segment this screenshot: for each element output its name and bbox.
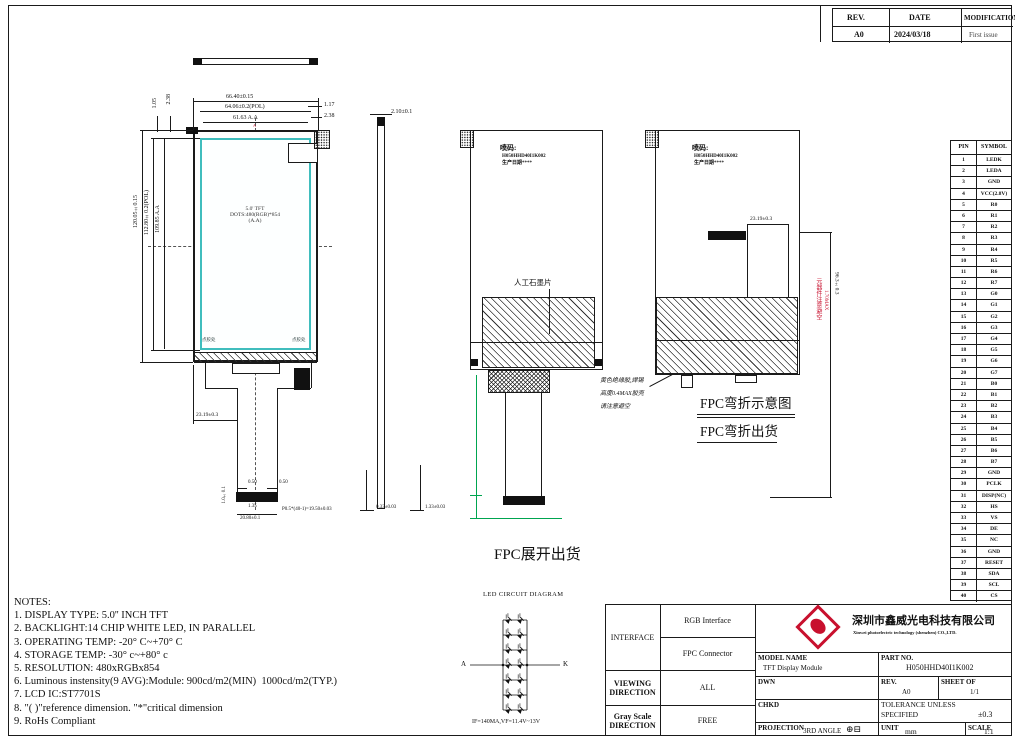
note-line: 4. STORAGE TEMP: -30° c~+80° c: [14, 649, 337, 662]
pin-row: 11R6: [951, 266, 1011, 277]
interface-label: INTERFACE: [611, 633, 654, 642]
dim-conn-3: 1.35: [248, 504, 257, 510]
dim-leader: [410, 510, 424, 511]
pin-cell: 21: [951, 379, 977, 389]
pin-cell: NC: [977, 535, 1011, 545]
viewing-value: ALL: [700, 683, 716, 692]
pin-cell: B0: [977, 379, 1011, 389]
company-name-en: Xinwei photoelectric technology (shenzhe…: [853, 630, 956, 635]
rev-label: REV.: [881, 678, 897, 686]
dim-ext: [770, 497, 832, 498]
symbol-col-header: SYMBOL: [977, 141, 1011, 154]
dim-left-small-1: 1.05: [152, 98, 159, 109]
dim-ext: [193, 365, 194, 424]
pin-cell: R0: [977, 200, 1011, 210]
pin-row: 9R4: [951, 244, 1011, 255]
title-underline: [697, 442, 777, 443]
pin-cell: VCC(2.8V): [977, 189, 1011, 199]
company-name-cn: 深圳市鑫威光电科技有限公司: [852, 615, 995, 628]
viewing-label-2: DIRECTION: [609, 688, 655, 697]
date-header: DATE: [909, 13, 931, 22]
dim-line: [200, 111, 311, 112]
tail-stiffener: [232, 363, 280, 374]
fpc-connector: [236, 492, 278, 502]
rev-value: A0: [902, 688, 911, 696]
pin-row: 21B0: [951, 378, 1011, 389]
green-dim-line: [470, 495, 482, 496]
dim-bend-top: 23.19±0.3: [750, 216, 772, 222]
tb-line: [965, 722, 966, 736]
pin-cell: B3: [977, 412, 1011, 422]
projection-symbol-icon: ⊕⊟: [846, 724, 861, 734]
pin-row: 40CS: [951, 590, 1011, 601]
glue-note-3: 请注意避空: [600, 404, 630, 411]
pin-cell: LEDA: [977, 166, 1011, 176]
green-dim-line: [476, 375, 477, 518]
pin-row: 24B3: [951, 411, 1011, 422]
title-underline: [697, 417, 795, 418]
pin-cell: PCLK: [977, 479, 1011, 489]
pin-cell: 2: [951, 166, 977, 176]
tb-line: [938, 676, 939, 699]
pin-cell: GND: [977, 468, 1011, 478]
pin-cell: B2: [977, 401, 1011, 411]
note-line: 1. DISPLAY TYPE: 5.0'' INCH TFT: [14, 609, 337, 622]
pin-cell: HS: [977, 502, 1011, 512]
pin-row: 5R0: [951, 199, 1011, 210]
pin-cell: 32: [951, 502, 977, 512]
tb-line: [755, 604, 756, 736]
folded-fpc-bar: [708, 231, 746, 240]
pin-cell: 13: [951, 289, 977, 299]
pin-cell: R6: [977, 267, 1011, 277]
model-name-value: TFT Display Module: [763, 664, 822, 672]
back-crossline: [470, 342, 603, 343]
pin-row: 16G3: [951, 322, 1011, 333]
bend-title-2: FPC弯折出货: [700, 424, 778, 440]
led-symbol: [515, 688, 526, 699]
dim-width-aa: 61.63 A.A: [233, 115, 258, 122]
pin-cell: R3: [977, 233, 1011, 243]
pin-cell: 38: [951, 569, 977, 579]
led-symbol: [515, 628, 526, 639]
spray-code-label: 喷码:: [692, 144, 708, 152]
pin-cell: B4: [977, 424, 1011, 434]
dim-ext: [140, 362, 193, 363]
dim-side-b2: 1.33±0.03: [425, 505, 445, 511]
pin-cell: 22: [951, 390, 977, 400]
sheet-label: SHEET OF: [941, 678, 976, 686]
dim-ext: [318, 98, 319, 130]
tb-line: [755, 652, 1012, 653]
tail-line: [205, 388, 237, 389]
pin-cell: 19: [951, 356, 977, 366]
led-symbol: [503, 658, 514, 669]
led-spec: IF=140MA,VF=11.4V~13V: [472, 719, 540, 726]
pin-cell: B1: [977, 390, 1011, 400]
interface-rgb: RGB Interface: [684, 616, 731, 625]
pin-row: 6R1: [951, 210, 1011, 221]
drawing-sheet: REV. DATE MODIFICATION A0 2024/03/18 Fir…: [0, 0, 1015, 744]
glue-label-right: 点胶处: [292, 337, 306, 342]
pin-cell: 40: [951, 591, 977, 601]
spray-code-pn: H050HHD40I1K002: [502, 154, 546, 160]
pin-cell: 27: [951, 446, 977, 456]
unit-label: UNIT: [881, 724, 899, 732]
pin-cell: 39: [951, 580, 977, 590]
pin-cell: 6: [951, 211, 977, 221]
marker-a: A: [253, 124, 256, 129]
component-block: [294, 368, 310, 390]
pin-row: 10R5: [951, 255, 1011, 266]
date-value: 2024/03/18: [894, 30, 930, 39]
bottom-hatch-strip: [194, 352, 317, 363]
tb-line: [755, 722, 1012, 723]
side-fpc-line: [420, 465, 421, 510]
pin-cell: G6: [977, 356, 1011, 366]
display-aa: (A.A): [249, 218, 262, 224]
green-dim-line: [470, 518, 562, 519]
pin-cell: R4: [977, 245, 1011, 255]
dim-height-pol: 112.80±0.2(POL): [144, 190, 151, 235]
spray-code-date: 生产日期****: [502, 161, 532, 167]
dim-line: [164, 139, 165, 349]
corner-mark: [595, 359, 602, 366]
bend-tail-piece: [735, 375, 757, 383]
gray-value: FREE: [698, 716, 718, 725]
dim-width-pol: 64.06±0.2(POL): [225, 104, 265, 111]
pin-cell: 12: [951, 278, 977, 288]
pin-cell: 18: [951, 345, 977, 355]
pin-cell: G2: [977, 312, 1011, 322]
rev-value: A0: [854, 30, 864, 39]
pin-cell: R1: [977, 211, 1011, 221]
pin-cell: 3: [951, 177, 977, 187]
display-spec-label: 5.0' TFT DOTS:480(RGB)*854 (A.A): [210, 200, 300, 230]
pin-cell: DE: [977, 524, 1011, 534]
tail-line: [205, 361, 206, 388]
pin-cell: B7: [977, 457, 1011, 467]
dim-line: [142, 130, 143, 362]
bend-tail-piece: [681, 375, 693, 388]
pin-cell: 11: [951, 267, 977, 277]
pin-row: 30PCLK: [951, 478, 1011, 489]
pin-cell: 30: [951, 479, 977, 489]
dim-line: [193, 101, 318, 102]
tolerance-value: ±0.3: [978, 710, 992, 719]
viewing-direction-cell: VIEWING DIRECTION: [605, 670, 660, 705]
pin-cell: 9: [951, 245, 977, 255]
ic-dot-block: [314, 130, 330, 149]
interface-value-2: FPC Connector: [660, 637, 755, 670]
dim-thickness: 2.10±0.1: [391, 109, 412, 116]
dim-right-2: 2.38: [324, 113, 335, 120]
pin-cell: G0: [977, 289, 1011, 299]
pin-cell: R5: [977, 256, 1011, 266]
pin-cell: DISP(NC): [977, 491, 1011, 501]
pin-cell: 16: [951, 323, 977, 333]
led-symbol: [503, 688, 514, 699]
corner-mark: [471, 359, 478, 366]
tolerance-label-1: TOLERANCE UNLESS: [881, 701, 956, 710]
dim-fpc-offset: 23.19±0.3: [196, 412, 218, 418]
note-line: 2. BACKLIGHT:14 CHIP WHITE LED, IN PARAL…: [14, 622, 337, 635]
pin-row: 32HS: [951, 501, 1011, 512]
tb-line: [755, 676, 1012, 677]
flat-ship-label: FPC展开出货: [494, 547, 581, 564]
top-profile-view: [193, 58, 318, 65]
dim-height-aa: 109.85 A.A: [155, 205, 162, 233]
side-view-outline: [377, 117, 385, 509]
dim-ext: [151, 138, 200, 139]
pin-row: 13G0: [951, 288, 1011, 299]
dim-height-outline: 120.05±0.15: [133, 195, 140, 228]
tail-line: [541, 393, 542, 496]
dim-line: [370, 114, 392, 115]
led-symbol: [515, 613, 526, 624]
side-fpc-line: [366, 470, 367, 510]
pin-row: 26B5: [951, 434, 1011, 445]
pin-cell: RESET: [977, 558, 1011, 568]
gray-label-1: Gray Scale: [614, 712, 652, 721]
part-no-value: H050HHD40I1K002: [906, 663, 974, 672]
glue-note-2: 高度0.4MAX胶壳: [600, 391, 644, 398]
bend-title-1: FPC弯折示意图: [700, 396, 792, 412]
pin-cell: 31: [951, 491, 977, 501]
note-line: 7. LCD IC:ST7701S: [14, 688, 337, 701]
company-logo-mark: [807, 616, 828, 637]
led-symbol: [515, 658, 526, 669]
pin-cell: 23: [951, 401, 977, 411]
dim-line: [830, 232, 831, 497]
model-name-label: MODEL NAME: [758, 654, 807, 662]
viewing-label-1: VIEWING: [614, 679, 651, 688]
led-symbol: [515, 673, 526, 684]
back-dot-block: [460, 130, 474, 148]
dim-leader: [360, 510, 374, 511]
bend-dot-block: [645, 130, 659, 148]
pin-cell: 4: [951, 189, 977, 199]
pin-row: 38SDA: [951, 568, 1011, 579]
tb-line: [878, 652, 879, 736]
tail-line: [277, 388, 278, 493]
mod-value: First issue: [969, 31, 998, 39]
led-symbol: [515, 703, 526, 714]
dim-leader: [308, 106, 322, 107]
grayscale-direction-cell: Gray Scale DIRECTION: [605, 705, 660, 736]
dim-conn-1: 0.50: [248, 480, 257, 486]
pin-cell: SCL: [977, 580, 1011, 590]
interface-fpc: FPC Connector: [683, 649, 733, 658]
dim-ext: [193, 98, 194, 130]
notes-block: NOTES: 1. DISPLAY TYPE: 5.0'' INCH TFT2.…: [14, 596, 337, 728]
dim-ext: [140, 130, 193, 131]
pin-cell: 33: [951, 513, 977, 523]
top-profile-cap: [193, 58, 202, 65]
pin-row: 23B2: [951, 400, 1011, 411]
dim-right-1: 1.17: [324, 102, 335, 109]
pin-cell: G5: [977, 345, 1011, 355]
note-line: 9. RoHs Compliant: [14, 715, 337, 728]
avoid-warning-max: 1.70MAX: [822, 290, 828, 310]
scale-value: 1:1: [984, 728, 994, 737]
unit-value: mm: [905, 728, 917, 737]
pin-row: 3GND: [951, 176, 1011, 187]
projection-value: 3RD ANGLE: [803, 727, 841, 735]
dim-side-b1: 0.33±0.03: [376, 505, 396, 511]
gray-label-2: DIRECTION: [609, 721, 655, 730]
sheet-value: 1/1: [970, 688, 979, 696]
pin-cell: 34: [951, 524, 977, 534]
pin-cell: 26: [951, 435, 977, 445]
pin-row: 28B7: [951, 456, 1011, 467]
pin-cell: G4: [977, 334, 1011, 344]
dim-leader: [237, 488, 247, 489]
rev-table-line: [820, 5, 821, 42]
dim-ext: [747, 224, 748, 297]
pin-row: 29GND: [951, 467, 1011, 478]
pin-cell: R7: [977, 278, 1011, 288]
glue-label-left: 点胶处: [202, 337, 216, 342]
note-line: 8. "( )"reference dimension. "*"critical…: [14, 702, 337, 715]
pin-cell: G1: [977, 300, 1011, 310]
pin-cell: G7: [977, 368, 1011, 378]
pin-cell: 7: [951, 222, 977, 232]
pin-cell: 36: [951, 547, 977, 557]
spray-code-label: 喷码:: [500, 144, 516, 152]
pin-cell: GND: [977, 547, 1011, 557]
pin-cell: 24: [951, 412, 977, 422]
fpc-connector: [503, 496, 545, 505]
projection-label: PROJECTION: [758, 724, 804, 732]
pin-row: 12R7: [951, 277, 1011, 288]
pin-cell: 5: [951, 200, 977, 210]
bend-crossline: [655, 340, 800, 341]
revision-table: REV. DATE MODIFICATION A0 2024/03/18 Fir…: [832, 8, 1012, 42]
led-symbol: [503, 673, 514, 684]
dim-ext: [800, 232, 832, 233]
pin-cell: B6: [977, 446, 1011, 456]
dim-conn-thickness: 1.0±0.1: [222, 486, 228, 504]
pin-cell: 20: [951, 368, 977, 378]
spray-code-date: 生产日期****: [694, 161, 724, 167]
pin-cell: VS: [977, 513, 1011, 523]
led-circuit-diagram: [455, 598, 615, 724]
tail-line: [237, 388, 238, 493]
notes-title: NOTES:: [14, 596, 337, 609]
pin-cell: 25: [951, 424, 977, 434]
title-underline: [697, 414, 795, 415]
glue-note-1: 黄色绝缘胶,焊锡: [600, 378, 644, 385]
pin-row: 36GND: [951, 546, 1011, 557]
chkd-label: CHKD: [758, 701, 779, 709]
pin-row: 18G5: [951, 344, 1011, 355]
pin-cell: 29: [951, 468, 977, 478]
led-symbol: [503, 643, 514, 654]
pin-row: 8R3: [951, 232, 1011, 243]
pin-cell: R2: [977, 222, 1011, 232]
pin-row: 25B4: [951, 423, 1011, 434]
pin-cell: 1: [951, 155, 977, 165]
dim-width-outline: 66.40±0.15: [226, 94, 253, 101]
pin-cell: B5: [977, 435, 1011, 445]
pin-cell: 37: [951, 558, 977, 568]
pin-table: PIN SYMBOL 1LEDK2LEDA3GND4VCC(2.8V)5R06R…: [950, 140, 1012, 601]
dim-line: [193, 420, 237, 421]
rev-row-line: [833, 26, 1013, 27]
pin-cell: LEDK: [977, 155, 1011, 165]
pin-cell: SDA: [977, 569, 1011, 579]
pin-row: 1LEDK: [951, 154, 1011, 165]
led-symbol: [503, 703, 514, 714]
tail-line: [505, 393, 506, 496]
top-profile-cap: [309, 58, 318, 65]
bend-hatch: [656, 297, 798, 374]
pin-cell: CS: [977, 591, 1011, 601]
pin-row: 4VCC(2.8V): [951, 188, 1011, 199]
pin-row: 31DISP(NC): [951, 490, 1011, 501]
part-no-label: PART NO.: [881, 654, 913, 662]
led-symbol: [503, 628, 514, 639]
dim-line: [153, 138, 154, 350]
notes-list: 1. DISPLAY TYPE: 5.0'' INCH TFT2. BACKLI…: [14, 609, 337, 728]
pin-cell: 17: [951, 334, 977, 344]
pin-cell: GND: [977, 177, 1011, 187]
pin-row: 35NC: [951, 534, 1011, 545]
grayscale-value-cell: FREE: [660, 705, 755, 736]
pin-cell: G3: [977, 323, 1011, 333]
pin-cell: 28: [951, 457, 977, 467]
avoid-warning-text: 元器件注意避空: [814, 278, 821, 320]
pin-cell: 35: [951, 535, 977, 545]
dim-bend-right: 96.3±0.3: [833, 272, 839, 295]
pin-rows: 1LEDK2LEDA3GND4VCC(2.8V)5R06R17R28R39R41…: [951, 154, 1011, 602]
note-line: 6. Luminous instensity(9 AVG):Module: 90…: [14, 675, 337, 688]
led-anode-label: A: [461, 660, 466, 668]
graphite-label: 人工石墨片: [514, 279, 552, 288]
tolerance-label-2: SPECIFIED: [881, 711, 918, 720]
dim-conn-2: 0.50: [279, 480, 288, 486]
pin-cell: 15: [951, 312, 977, 322]
note-line: 3. OPERATING TEMP: -20° C~+70° C: [14, 636, 337, 649]
led-symbol: [503, 613, 514, 624]
pin-row: 15G2: [951, 311, 1011, 322]
back-tail-stiffener: [488, 370, 550, 393]
pin-row: 17G4: [951, 333, 1011, 344]
pin-cell: 8: [951, 233, 977, 243]
pin-cell: 10: [951, 256, 977, 266]
pin-row: 34DE: [951, 523, 1011, 534]
interface-value-1: RGB Interface: [660, 604, 755, 637]
dim-leader: [311, 117, 322, 118]
active-area-outline: [200, 138, 311, 350]
dim-left-small-2: 2.38: [166, 94, 173, 105]
pin-row: 27B6: [951, 445, 1011, 456]
pin-cell: 14: [951, 300, 977, 310]
spray-code-pn: H050HHD40I1K002: [694, 154, 738, 160]
dim-ext: [788, 224, 789, 297]
pin-row: 19G6: [951, 355, 1011, 366]
pin-row: 39SCL: [951, 579, 1011, 590]
graphite-hatch: [482, 297, 595, 368]
led-symbol: [515, 643, 526, 654]
side-view-cap: [377, 117, 385, 126]
dim-line: [237, 514, 277, 515]
viewing-value-cell: ALL: [660, 670, 755, 705]
rev-header: REV.: [847, 13, 865, 22]
interface-label-cell: INTERFACE: [605, 604, 660, 670]
mod-header: MODIFICATION: [964, 14, 1015, 22]
